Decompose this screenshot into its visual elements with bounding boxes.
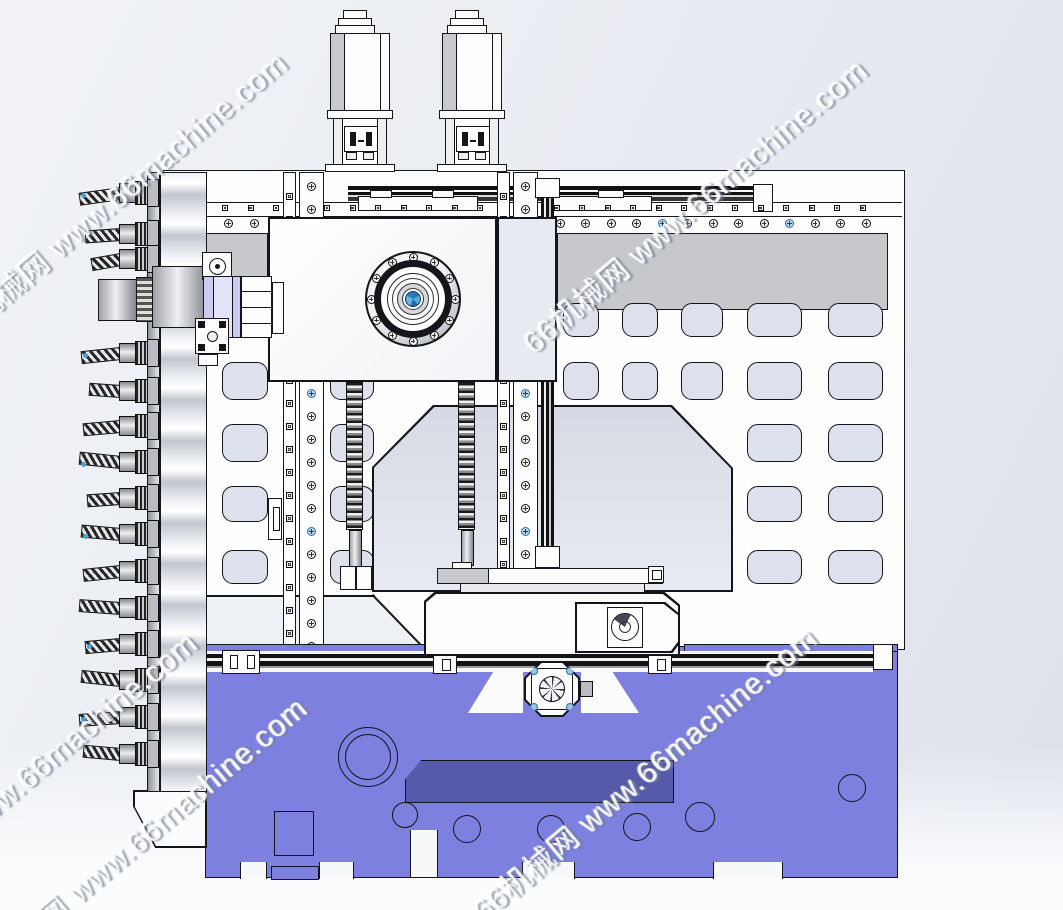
rail-square-bolt-icon xyxy=(500,423,507,430)
spindle-head-side-panel xyxy=(497,217,557,382)
lightening-cutout xyxy=(828,362,883,400)
coupling-bracket xyxy=(456,126,490,152)
coolant-dot-icon xyxy=(81,717,86,722)
motor-coupling-frame xyxy=(445,118,499,165)
hub-shaft xyxy=(98,279,137,321)
beam-bolt-icon xyxy=(683,219,692,228)
rail-bolt-icon xyxy=(521,389,530,398)
guide-shoe-right xyxy=(648,655,672,674)
beam-square-bolt-icon xyxy=(630,205,636,211)
lightening-cutout xyxy=(222,550,268,584)
motor-body xyxy=(442,33,502,111)
rail-bolt-icon xyxy=(307,527,316,536)
coolant-dot-icon xyxy=(83,353,88,358)
rail-bolt-icon xyxy=(521,481,530,490)
base-recess-dark xyxy=(405,760,674,803)
rail-bolt-icon xyxy=(307,458,316,467)
guide-slider-right xyxy=(552,196,652,211)
coupling-slot xyxy=(350,132,356,146)
rail-square-bolt-icon xyxy=(500,515,507,522)
base-square-hole xyxy=(274,811,314,856)
beam-square-bolt-icon xyxy=(452,205,458,211)
lightening-cutout xyxy=(747,362,802,400)
screw-nut-block xyxy=(340,566,372,590)
motor-body-line xyxy=(492,34,493,110)
rail-square-bolt-icon xyxy=(500,469,507,476)
lightening-cutout xyxy=(747,303,802,337)
work-table xyxy=(437,568,663,584)
coolant-dot-icon xyxy=(83,534,88,539)
beam-bolt-icon xyxy=(785,219,794,228)
coupling-column xyxy=(489,119,498,164)
servo-flange xyxy=(524,661,580,717)
hub-bracket-rib xyxy=(272,282,284,334)
base-foot-notch xyxy=(319,862,354,879)
rail-bolt-icon xyxy=(307,481,316,490)
coupling-slot-bar xyxy=(470,132,476,142)
lightening-cutout xyxy=(622,303,658,337)
beam-square-bolt-icon xyxy=(656,205,662,211)
rail-square-bolt-icon xyxy=(286,630,293,637)
motor-body-line xyxy=(380,34,381,110)
table-sub-plate xyxy=(460,583,645,593)
rail-bolt-icon xyxy=(307,205,316,214)
coupling-column xyxy=(334,119,343,164)
base-foot-notch xyxy=(240,862,267,879)
beam-bolt-icon xyxy=(760,219,769,228)
base-hole-circle xyxy=(453,815,481,843)
rail-bolt-icon xyxy=(521,504,530,513)
motor-base-flange xyxy=(437,164,507,172)
lightening-cutout xyxy=(747,550,802,584)
rail-bolt-icon xyxy=(521,458,530,467)
rail-square-bolt-icon xyxy=(286,538,293,545)
beam-bolt-icon xyxy=(709,219,718,228)
tool-collar xyxy=(147,703,159,731)
drill-bit-icon xyxy=(83,565,122,582)
rail-bolt-icon xyxy=(521,435,530,444)
tool-collar xyxy=(147,448,159,476)
spindle-bearing xyxy=(365,251,461,347)
gray-band-right xyxy=(557,233,888,310)
rail-bolt-icon xyxy=(307,573,316,582)
drill-bit-icon xyxy=(90,253,122,271)
beam-square-bolt-icon xyxy=(426,205,432,211)
rail-square-bolt-icon xyxy=(286,584,293,591)
lightening-cutout xyxy=(563,303,599,337)
beam-square-bolt-icon xyxy=(681,205,687,211)
hub-gear xyxy=(136,277,153,322)
rail-square-bolt-icon xyxy=(500,446,507,453)
beam-bolt-icon xyxy=(607,219,616,228)
beam-square-bolt-icon xyxy=(809,205,815,211)
lightening-cutout xyxy=(563,362,599,400)
drill-bit-icon xyxy=(79,599,122,615)
motor-body xyxy=(330,33,390,111)
lightening-cutout xyxy=(747,424,802,462)
guide-bottom-bracket xyxy=(535,546,560,568)
coupling-pad xyxy=(458,152,469,160)
rail-bolt-icon xyxy=(521,412,530,421)
tool-collar xyxy=(147,484,159,512)
rail-square-bolt-icon xyxy=(500,538,507,545)
base-hole-circle xyxy=(623,813,651,841)
beam-square-bolt-icon xyxy=(375,205,381,211)
rail-square-bolt-icon xyxy=(286,423,293,430)
rail-square-bolt-icon xyxy=(286,492,293,499)
rail-bolt-icon xyxy=(307,504,316,513)
table-end-clamp xyxy=(648,566,664,583)
guide-top-bracket xyxy=(535,178,560,198)
spindle-center-hub xyxy=(405,291,421,307)
tool-collar xyxy=(147,557,159,585)
base-hole-circle xyxy=(537,815,565,843)
beam-bolt-icon xyxy=(632,219,641,228)
lightening-cutout xyxy=(828,424,883,462)
hub-sensor-block xyxy=(198,354,218,366)
base-foot-notch xyxy=(713,862,783,879)
lightening-cutout xyxy=(681,303,723,337)
tool-collar xyxy=(147,520,159,548)
rail-bolt-icon xyxy=(307,550,316,559)
beam-square-bolt-icon xyxy=(860,205,866,211)
coolant-dot-icon xyxy=(81,193,86,198)
tool-collar xyxy=(147,630,159,658)
rail-square-bolt-icon xyxy=(286,469,293,476)
beam-square-bolt-icon xyxy=(273,205,279,211)
rail-square-bolt-icon xyxy=(286,446,293,453)
rail-square-bolt-icon xyxy=(286,561,293,568)
rail-bolt-icon xyxy=(307,596,316,605)
coupling-slot xyxy=(478,132,484,146)
tool-collar xyxy=(147,220,159,248)
lightening-cutout xyxy=(681,362,723,400)
rail-square-bolt-icon xyxy=(500,400,507,407)
guide-shoe-left xyxy=(433,655,457,674)
coupling-column xyxy=(446,119,455,164)
slider-lug-icon xyxy=(598,190,624,198)
lightening-cutout xyxy=(622,362,658,400)
beam-square-bolt-icon xyxy=(401,205,407,211)
lightening-cutout xyxy=(747,486,802,522)
lightening-cutout xyxy=(222,362,268,400)
servo-stub xyxy=(580,681,593,697)
beam-bolt-icon xyxy=(250,219,259,228)
rail-bolt-icon xyxy=(307,389,316,398)
coupling-pad xyxy=(346,152,357,160)
slider-lug-icon xyxy=(432,190,454,198)
ballscrew-left-shaft xyxy=(349,530,362,570)
ballscrew-right xyxy=(458,382,475,530)
base-bore-circle xyxy=(345,734,391,780)
lightening-cutout xyxy=(828,303,883,337)
slider-lug-icon xyxy=(370,190,392,198)
saddle-motor-circle xyxy=(611,613,639,641)
lightening-cutout xyxy=(222,486,268,522)
motor-body-shade xyxy=(331,34,345,110)
base-hole-circle xyxy=(392,802,418,828)
drill-bit-icon xyxy=(83,420,122,436)
base-hole-circle xyxy=(685,802,715,832)
base-hole-circle xyxy=(838,774,866,802)
beam-square-bolt-icon xyxy=(477,205,483,211)
coupling-slot xyxy=(366,132,372,146)
ballscrew-left xyxy=(346,382,363,530)
rail-bolt-icon xyxy=(307,435,316,444)
tool-collar xyxy=(147,339,159,367)
tool-collar xyxy=(147,666,159,694)
rail-square-bolt-icon xyxy=(286,193,293,200)
lightening-cutout xyxy=(828,486,883,522)
tool-collar xyxy=(147,412,159,440)
drill-bit-icon xyxy=(87,492,122,507)
coupling-slot-bar xyxy=(358,132,364,142)
tool-collar xyxy=(147,740,159,768)
rail-square-bolt-icon xyxy=(286,400,293,407)
ballscrew-right-shaft xyxy=(461,530,474,566)
beam-square-bolt-icon xyxy=(350,205,356,211)
rail-bolt-icon xyxy=(521,550,530,559)
beam-square-bolt-icon xyxy=(222,205,228,211)
lube-slot-plate xyxy=(268,498,282,540)
rail-square-bolt-icon xyxy=(500,193,507,200)
beam-bolt-icon xyxy=(734,219,743,228)
beam-square-bolt-icon xyxy=(248,205,254,211)
motor-coupling-frame xyxy=(333,118,387,165)
coupling-pad xyxy=(475,152,486,160)
coupling-pad xyxy=(363,152,374,160)
beam-bolt-icon xyxy=(581,219,590,228)
rail-bolt-icon xyxy=(521,527,530,536)
rail-bolt-icon xyxy=(307,182,316,191)
guide-shoe-far-left xyxy=(222,650,260,674)
beam-bolt-icon xyxy=(224,219,233,228)
beam-square-bolt-icon xyxy=(707,205,713,211)
beam-square-bolt-icon xyxy=(783,205,789,211)
beam-square-bolt-icon xyxy=(324,205,330,211)
lightening-cutout xyxy=(222,424,268,462)
rail-bolt-icon xyxy=(521,205,530,214)
coolant-dot-icon xyxy=(87,644,92,649)
coolant-dot-icon xyxy=(81,462,86,467)
beam-square-bolt-icon xyxy=(605,205,611,211)
hub-lower-flange xyxy=(195,318,229,354)
drill-bit-icon xyxy=(83,744,122,760)
rail-bolt-icon xyxy=(521,182,530,191)
beam-square-bolt-icon xyxy=(758,205,764,211)
coupling-column xyxy=(377,119,386,164)
rail-square-bolt-icon xyxy=(500,561,507,568)
beam-square-bolt-icon xyxy=(834,205,840,211)
drill-bit-icon xyxy=(89,382,122,397)
rail-square-bolt-icon xyxy=(286,607,293,614)
drill-bit-icon xyxy=(85,228,122,243)
beam-square-bolt-icon xyxy=(579,205,585,211)
rail-bolt-icon xyxy=(307,412,316,421)
rail-square-bolt-icon xyxy=(500,492,507,499)
coupling-slot xyxy=(462,132,468,146)
beam-square-bolt-icon xyxy=(732,205,738,211)
rail-end-bracket xyxy=(873,644,893,670)
motor-body-shade xyxy=(443,34,457,110)
drill-bit-icon xyxy=(81,669,122,686)
base-foot-notch xyxy=(522,862,575,879)
hub-bracket-flange xyxy=(241,276,272,338)
cad-viewport[interactable]: 66机械网 www.66machine.com66机械网 www.66machi… xyxy=(0,0,1063,910)
beam-bolt-icon xyxy=(836,219,845,228)
carousel-stand xyxy=(133,790,207,848)
beam-bolt-icon xyxy=(862,219,871,228)
beam-bolt-icon xyxy=(658,219,667,228)
coupling-bracket xyxy=(344,126,378,152)
motor-base-flange xyxy=(325,164,395,172)
base-gap-notch xyxy=(410,830,438,877)
tool-collar xyxy=(147,594,159,622)
tool-collar xyxy=(147,377,159,405)
rail-square-bolt-icon xyxy=(286,515,293,522)
beam-square-bolt-icon xyxy=(554,205,560,211)
lightening-cutout xyxy=(828,550,883,584)
beam-bolt-icon xyxy=(811,219,820,228)
carousel-disc xyxy=(160,172,207,792)
base-foot-pad xyxy=(271,866,319,880)
rail-bolt-icon xyxy=(307,619,316,628)
tool-collar xyxy=(147,179,159,207)
